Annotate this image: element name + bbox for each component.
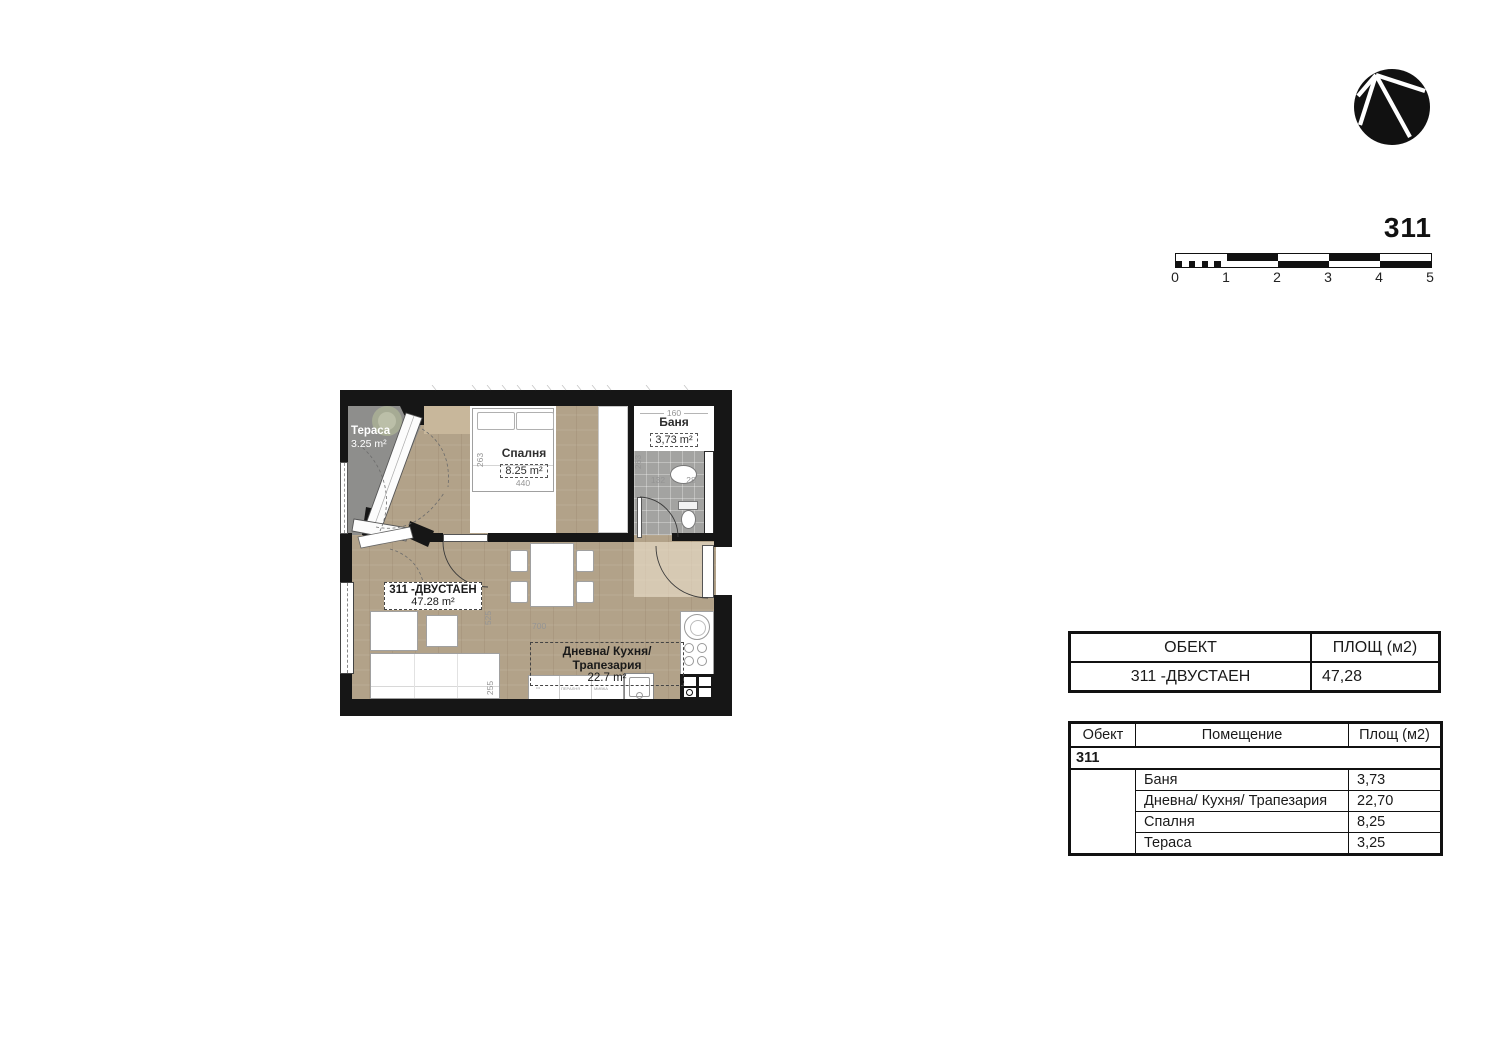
- rooms-group: 311: [1070, 747, 1442, 769]
- chair: [576, 550, 594, 572]
- door-leaf-entry: [702, 545, 714, 598]
- chair: [576, 581, 594, 603]
- toilet-tank-icon: [678, 501, 698, 510]
- door-leaf-bathroom: [637, 497, 642, 538]
- pillow: [516, 412, 554, 430]
- rooms-object-cell: [1070, 769, 1136, 855]
- dining-table: [530, 543, 574, 607]
- summary-col-object: ОБЕКТ: [1070, 633, 1312, 663]
- dim-bathroom-height: 263: [633, 450, 643, 474]
- wall-partition: [488, 533, 634, 542]
- floor-plan: ••• ПЕРАЛНЯ МИВКА: [340, 385, 734, 725]
- scale-bar-labels: 0 1 2 3 4 5: [1175, 269, 1430, 285]
- scale-seg: [1176, 254, 1227, 267]
- armchair: [426, 615, 458, 647]
- closet: [424, 406, 470, 434]
- burner-icon: [684, 656, 694, 666]
- living-label: Дневна/ Кухня/ Трапезария 22.7 m²: [530, 642, 684, 686]
- unit-number: 311: [1330, 212, 1432, 244]
- burner-icon: [697, 656, 707, 666]
- summary-table: ОБЕКТ ПЛОЩ (м2) 311 -ДВУСТАЕН 47,28: [1068, 631, 1441, 693]
- terrace-label: Тераса 3.25 m²: [351, 425, 390, 450]
- summary-col-area: ПЛОЩ (м2): [1311, 633, 1440, 663]
- page: 311 0 1 2 3 4 5: [0, 0, 1500, 1061]
- terrace-balustrade: [340, 462, 348, 534]
- door-leaf-bedroom: [443, 534, 488, 542]
- rooms-col-area: Площ (м2): [1349, 723, 1442, 748]
- dim-living-bottom: 255: [485, 676, 495, 700]
- dim-bathroom-a: 132: [646, 475, 670, 485]
- chair: [510, 550, 528, 572]
- scale-bar: [1175, 253, 1432, 268]
- arco-circle-logo-icon: [1353, 68, 1431, 146]
- wall-left-mid: [340, 533, 352, 583]
- dim-living-width: 700: [532, 621, 572, 631]
- wall-top: [340, 390, 732, 406]
- pillow: [477, 412, 515, 430]
- rooms-table: Обект Помещение Площ (м2) 311 Баня 3,73 …: [1068, 721, 1443, 856]
- wall-right-upper: [714, 390, 732, 547]
- summary-object: 311 -ДВУСТАЕН: [1070, 662, 1312, 692]
- wall-left-bottom: [340, 672, 352, 716]
- wall-right-lower: [714, 595, 732, 716]
- table-row: 311 -ДВУСТАЕН 47,28: [1070, 662, 1440, 692]
- wall-bathroom-bottom: [672, 533, 714, 541]
- dim-bathroom-b: 28: [682, 475, 700, 485]
- dim-living-height: 525: [483, 606, 493, 630]
- summary-area: 47,28: [1311, 662, 1440, 692]
- kitchen-sink-icon: [684, 614, 710, 640]
- burner-icon: [697, 643, 707, 653]
- toilet-icon: [681, 510, 696, 529]
- table-row: Баня 3,73: [1070, 769, 1442, 791]
- appliance-label: МИВКА: [594, 686, 608, 691]
- unit-label: 311 -ДВУСТАЕН 47.28 m²: [384, 582, 482, 610]
- wall-left-top: [340, 390, 348, 464]
- wall-bottom: [340, 699, 732, 716]
- coffee-table: [370, 611, 418, 651]
- rooms-col-object: Обект: [1070, 723, 1136, 748]
- dim-bedroom-width: 440: [498, 478, 548, 488]
- bedroom-label: Спалня 8.25 m²: [490, 447, 558, 479]
- table-row: 311: [1070, 747, 1442, 769]
- wall-partition: [417, 533, 443, 542]
- sofa: [370, 653, 500, 699]
- chair: [510, 581, 528, 603]
- burner-icon: [684, 643, 694, 653]
- window-left: [340, 582, 354, 674]
- bathroom-label: Баня 3,73 m²: [634, 416, 714, 448]
- dim-bathroom-width: 160: [640, 408, 708, 418]
- dim-bedroom-height: 263: [475, 448, 485, 472]
- rooms-col-room: Помещение: [1136, 723, 1349, 748]
- stove-icon: [680, 674, 714, 700]
- appliance-label: ПЕРАЛНЯ: [561, 686, 580, 691]
